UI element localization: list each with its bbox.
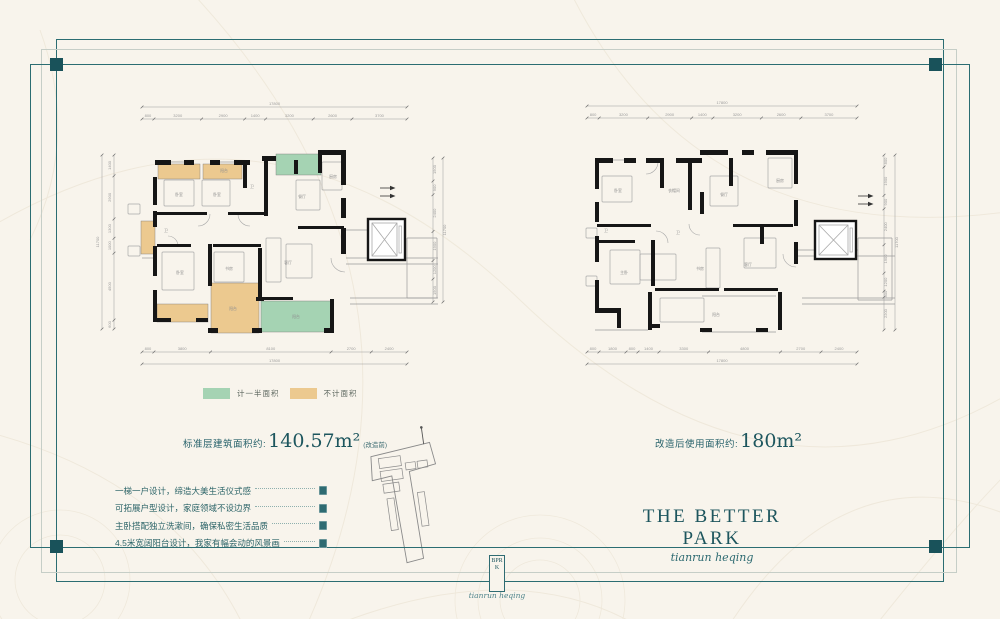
svg-text:卧室: 卧室 — [614, 188, 622, 193]
svg-text:1400: 1400 — [698, 112, 708, 117]
elevator-shaft — [368, 219, 405, 260]
frame-corner-square-tr — [929, 58, 942, 71]
area-prefix: 标准层建筑面积约: — [183, 436, 266, 450]
svg-text:1300: 1300 — [107, 223, 112, 233]
svg-text:1000: 1000 — [107, 240, 112, 250]
svg-text:800: 800 — [145, 113, 152, 118]
svg-text:8100: 8100 — [266, 346, 276, 351]
area-title-after: 改造后使用面积约: 180m² — [655, 430, 802, 452]
seal-stamp-icon — [319, 521, 327, 530]
svg-text:卧室: 卧室 — [176, 270, 184, 275]
feature-item: 一梯一户设计，缔造大美生活仪式感 — [115, 482, 327, 500]
svg-text:3800: 3800 — [178, 346, 188, 351]
svg-text:800: 800 — [590, 346, 597, 351]
svg-text:4500: 4500 — [107, 281, 112, 291]
svg-text:1900: 1900 — [883, 254, 888, 264]
svg-text:主卧: 主卧 — [620, 270, 628, 275]
svg-text:客厅: 客厅 — [744, 262, 752, 267]
leader-dots — [255, 488, 315, 489]
svg-text:17800: 17800 — [269, 101, 281, 106]
svg-text:卫: 卫 — [604, 228, 608, 233]
svg-text:2400: 2400 — [432, 208, 437, 218]
feature-item: 4.5米宽阔阳台设计，我家有幅会动的风景画 — [115, 535, 327, 553]
feature-text: 主卧搭配独立洗漱间，确保私密生活品质 — [115, 520, 268, 532]
svg-text:800: 800 — [145, 346, 152, 351]
seal-stamp-icon — [319, 504, 327, 513]
svg-text:11700: 11700 — [95, 236, 100, 248]
svg-text:1200: 1200 — [432, 265, 437, 275]
area-note: (改造前) — [363, 439, 387, 449]
svg-text:2700: 2700 — [347, 346, 357, 351]
svg-text:1200: 1200 — [883, 277, 888, 287]
leader-dots — [272, 523, 315, 524]
feature-text: 可拓展户型设计，家庭领域不设边界 — [115, 502, 251, 514]
leader-dots — [284, 541, 315, 542]
legend-label: 计一半面积 — [237, 388, 280, 399]
svg-text:800: 800 — [590, 112, 597, 117]
svg-text:3700: 3700 — [824, 112, 834, 117]
svg-text:2900: 2900 — [219, 113, 229, 118]
svg-text:衣帽间: 衣帽间 — [668, 188, 680, 193]
svg-text:卫: 卫 — [676, 230, 680, 235]
area-value: 140.57m² — [268, 430, 360, 452]
svg-text:17800: 17800 — [716, 100, 728, 105]
svg-text:11700: 11700 — [442, 224, 447, 236]
svg-text:11700: 11700 — [894, 236, 899, 248]
svg-text:1800: 1800 — [608, 346, 618, 351]
svg-text:厨房: 厨房 — [329, 174, 337, 179]
area-value: 180m² — [740, 430, 802, 452]
feature-text: 4.5米宽阔阳台设计，我家有幅会动的风景画 — [115, 537, 280, 549]
svg-text:2900: 2900 — [107, 192, 112, 202]
brand-block: THE BETTER PARK tianrun heqing — [612, 506, 812, 564]
svg-text:阳台: 阳台 — [229, 306, 237, 311]
svg-text:客厅: 客厅 — [284, 260, 292, 265]
svg-text:600: 600 — [107, 320, 112, 327]
svg-text:400: 400 — [883, 290, 888, 297]
svg-text:3200: 3200 — [619, 112, 629, 117]
svg-text:阳台: 阳台 — [292, 314, 300, 319]
svg-text:3200: 3200 — [285, 113, 295, 118]
svg-text:卫: 卫 — [250, 184, 254, 189]
svg-text:900: 900 — [432, 184, 437, 191]
svg-text:2400: 2400 — [883, 222, 888, 232]
svg-text:2400: 2400 — [385, 346, 395, 351]
svg-text:2900: 2900 — [665, 112, 675, 117]
feature-text: 一梯一户设计，缔造大美生活仪式感 — [115, 485, 251, 497]
legend-swatch-tan — [290, 388, 317, 399]
legend-swatch-green — [203, 388, 230, 399]
svg-text:书房: 书房 — [696, 266, 704, 271]
frame-corner-square-br — [929, 540, 942, 553]
seal-stamp-icon — [319, 486, 327, 495]
svg-text:2600: 2600 — [328, 113, 338, 118]
svg-text:2600: 2600 — [777, 112, 787, 117]
svg-text:3200: 3200 — [173, 113, 183, 118]
svg-text:阳台: 阳台 — [712, 312, 720, 317]
svg-text:3700: 3700 — [375, 113, 385, 118]
svg-text:1400: 1400 — [644, 346, 654, 351]
svg-text:1500: 1500 — [432, 285, 437, 295]
legend-item-half-area: 计一半面积 — [203, 388, 280, 399]
svg-text:1900: 1900 — [432, 241, 437, 251]
svg-text:800: 800 — [883, 157, 888, 164]
legend-label: 不计面积 — [324, 388, 358, 399]
svg-text:3200: 3200 — [733, 112, 743, 117]
svg-text:1500: 1500 — [432, 164, 437, 174]
svg-text:2700: 2700 — [796, 346, 806, 351]
legend: 计一半面积 不计面积 — [203, 388, 358, 399]
area-prefix: 改造后使用面积约: — [655, 436, 738, 450]
svg-text:1400: 1400 — [107, 160, 112, 170]
svg-text:17800: 17800 — [269, 358, 281, 363]
svg-text:1900: 1900 — [883, 176, 888, 186]
svg-text:卧室: 卧室 — [213, 192, 221, 197]
svg-text:17800: 17800 — [716, 358, 728, 363]
area-title-before: 标准层建筑面积约: 140.57m² (改造前) — [183, 430, 387, 452]
floor-plan-before: 卧室卧室餐厅厨房客厅卧室书房阳台阳台卫卫阳台800320029001400320… — [95, 101, 447, 365]
svg-text:餐厅: 餐厅 — [298, 194, 306, 199]
svg-text:3300: 3300 — [679, 346, 689, 351]
poster: 卧室卧室餐厅厨房客厅卧室书房阳台阳台卫卫阳台800320029001400320… — [0, 0, 1000, 619]
feature-item: 主卧搭配独立洗漱间，确保私密生活品质 — [115, 517, 327, 535]
svg-text:1400: 1400 — [251, 113, 261, 118]
svg-text:900: 900 — [883, 198, 888, 205]
elevator-shaft — [815, 221, 856, 259]
svg-text:阳台: 阳台 — [220, 168, 228, 173]
feature-list: 一梯一户设计，缔造大美生活仪式感 可拓展户型设计，家庭领域不设边界 主卧搭配独立… — [115, 482, 327, 552]
seal-stamp-icon — [319, 539, 327, 548]
floor-plan-after: 卧室衣帽间餐厅厨房主卧书房客厅阳台卫卫800320029001400320026… — [586, 100, 899, 365]
brand-name: THE BETTER PARK — [612, 506, 812, 550]
legend-item-excluded-area: 不计面积 — [290, 388, 358, 399]
svg-text:书房: 书房 — [225, 266, 233, 271]
seal-script: tianrun heqing — [447, 591, 547, 600]
svg-text:4800: 4800 — [740, 346, 750, 351]
leader-dots — [255, 506, 315, 507]
brand-seal: BPRK — [489, 555, 505, 592]
svg-text:2200: 2200 — [883, 308, 888, 318]
svg-text:卧室: 卧室 — [175, 192, 183, 197]
svg-text:厨房: 厨房 — [776, 178, 784, 183]
frame-corner-square-tl — [50, 58, 63, 71]
svg-text:2400: 2400 — [835, 346, 845, 351]
svg-text:卫: 卫 — [164, 228, 168, 233]
brand-script: tianrun heqing — [612, 551, 812, 564]
frame-corner-square-bl — [50, 540, 63, 553]
feature-item: 可拓展户型设计，家庭领域不设边界 — [115, 500, 327, 518]
svg-text:餐厅: 餐厅 — [720, 192, 728, 197]
svg-text:800: 800 — [629, 346, 636, 351]
